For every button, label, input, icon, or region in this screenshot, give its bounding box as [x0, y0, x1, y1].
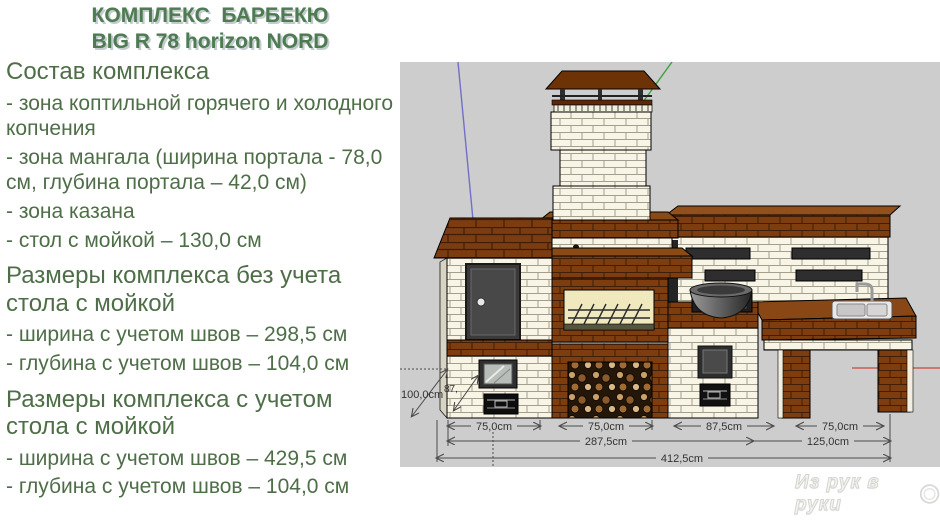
barbecue-3d-render: 100,0cm 87, 75,0cm 75,0cm 87,5cm 75,0cm … [400, 62, 940, 467]
dim-label-total-width: 412,5cm [661, 453, 703, 465]
smoker-roof [434, 218, 552, 258]
firewood [568, 362, 652, 418]
list-item: - зона казана [6, 199, 398, 225]
list-item: - ширина с учетом швов – 429,5 см [6, 446, 398, 472]
list-item: - глубина с учетом швов – 104,0 см [6, 474, 398, 500]
table-leg-right [878, 350, 910, 412]
list-item: - зона коптильной горячего и холодного к… [6, 91, 398, 142]
kazan-section [668, 283, 758, 418]
firewood-niche [552, 344, 668, 418]
page-title: КОМПЛЕКС БАРБЕКЮ BIG R 78 horizon NORD [55, 3, 365, 54]
smoker-chamber-door [466, 264, 520, 340]
ash-vent-door [484, 394, 518, 414]
list-item: - стол с мойкой – 130,0 см [6, 228, 398, 254]
dim-label-smoker-width: 75,0cm [476, 421, 512, 433]
chimney-cap-roof [546, 71, 660, 89]
watermark-text: Из рук в руки [795, 472, 917, 516]
section-heading-size-no-table: Размеры комплекса без учета стола с мойк… [6, 262, 398, 317]
kazan-firebox-door [698, 346, 732, 378]
dim-label-kazan-width: 87,5cm [706, 421, 742, 433]
smoker-firebox-door [479, 360, 517, 388]
info-column: Состав комплекса - зона коптильной горяч… [6, 58, 398, 503]
table-leg-left [782, 350, 810, 418]
watermark: Из рук в руки [795, 472, 940, 516]
section-heading-size-with-table: Размеры комплекса с учетом стола с мойко… [6, 386, 398, 441]
title-line-1: КОМПЛЕКС БАРБЕКЮ [55, 3, 365, 29]
watermark-logo [919, 482, 940, 506]
dim-label-table-leg-width: 75,0cm [822, 421, 858, 433]
slide: КОМПЛЕКС БАРБЕКЮ BIG R 78 horizon NORD С… [0, 0, 940, 528]
list-item: - глубина с учетом швов – 104,0 см [6, 351, 398, 377]
list-item: - ширина с учетом швов – 298,5 см [6, 322, 398, 348]
kazan-vent-door [700, 384, 730, 406]
title-line-2: BIG R 78 horizon NORD [55, 29, 365, 55]
dim-label-main-width: 287,5cm [585, 436, 627, 448]
door-knob [477, 298, 485, 306]
dim-label-height: 100,0cm [401, 389, 443, 401]
dim-label-wood-width: 75,0cm [588, 421, 624, 433]
model-viewport: 100,0cm 87, 75,0cm 75,0cm 87,5cm 75,0cm … [400, 62, 940, 467]
dim-label-depth: 87, [444, 384, 458, 395]
mangal-section [528, 217, 692, 418]
section-heading-composition: Состав комплекса [6, 58, 398, 86]
dim-label-table-width: 125,0cm [807, 436, 849, 448]
mangal-portal [552, 278, 668, 342]
list-item: - зона мангала (ширина портала - 78,0 см… [6, 145, 398, 196]
